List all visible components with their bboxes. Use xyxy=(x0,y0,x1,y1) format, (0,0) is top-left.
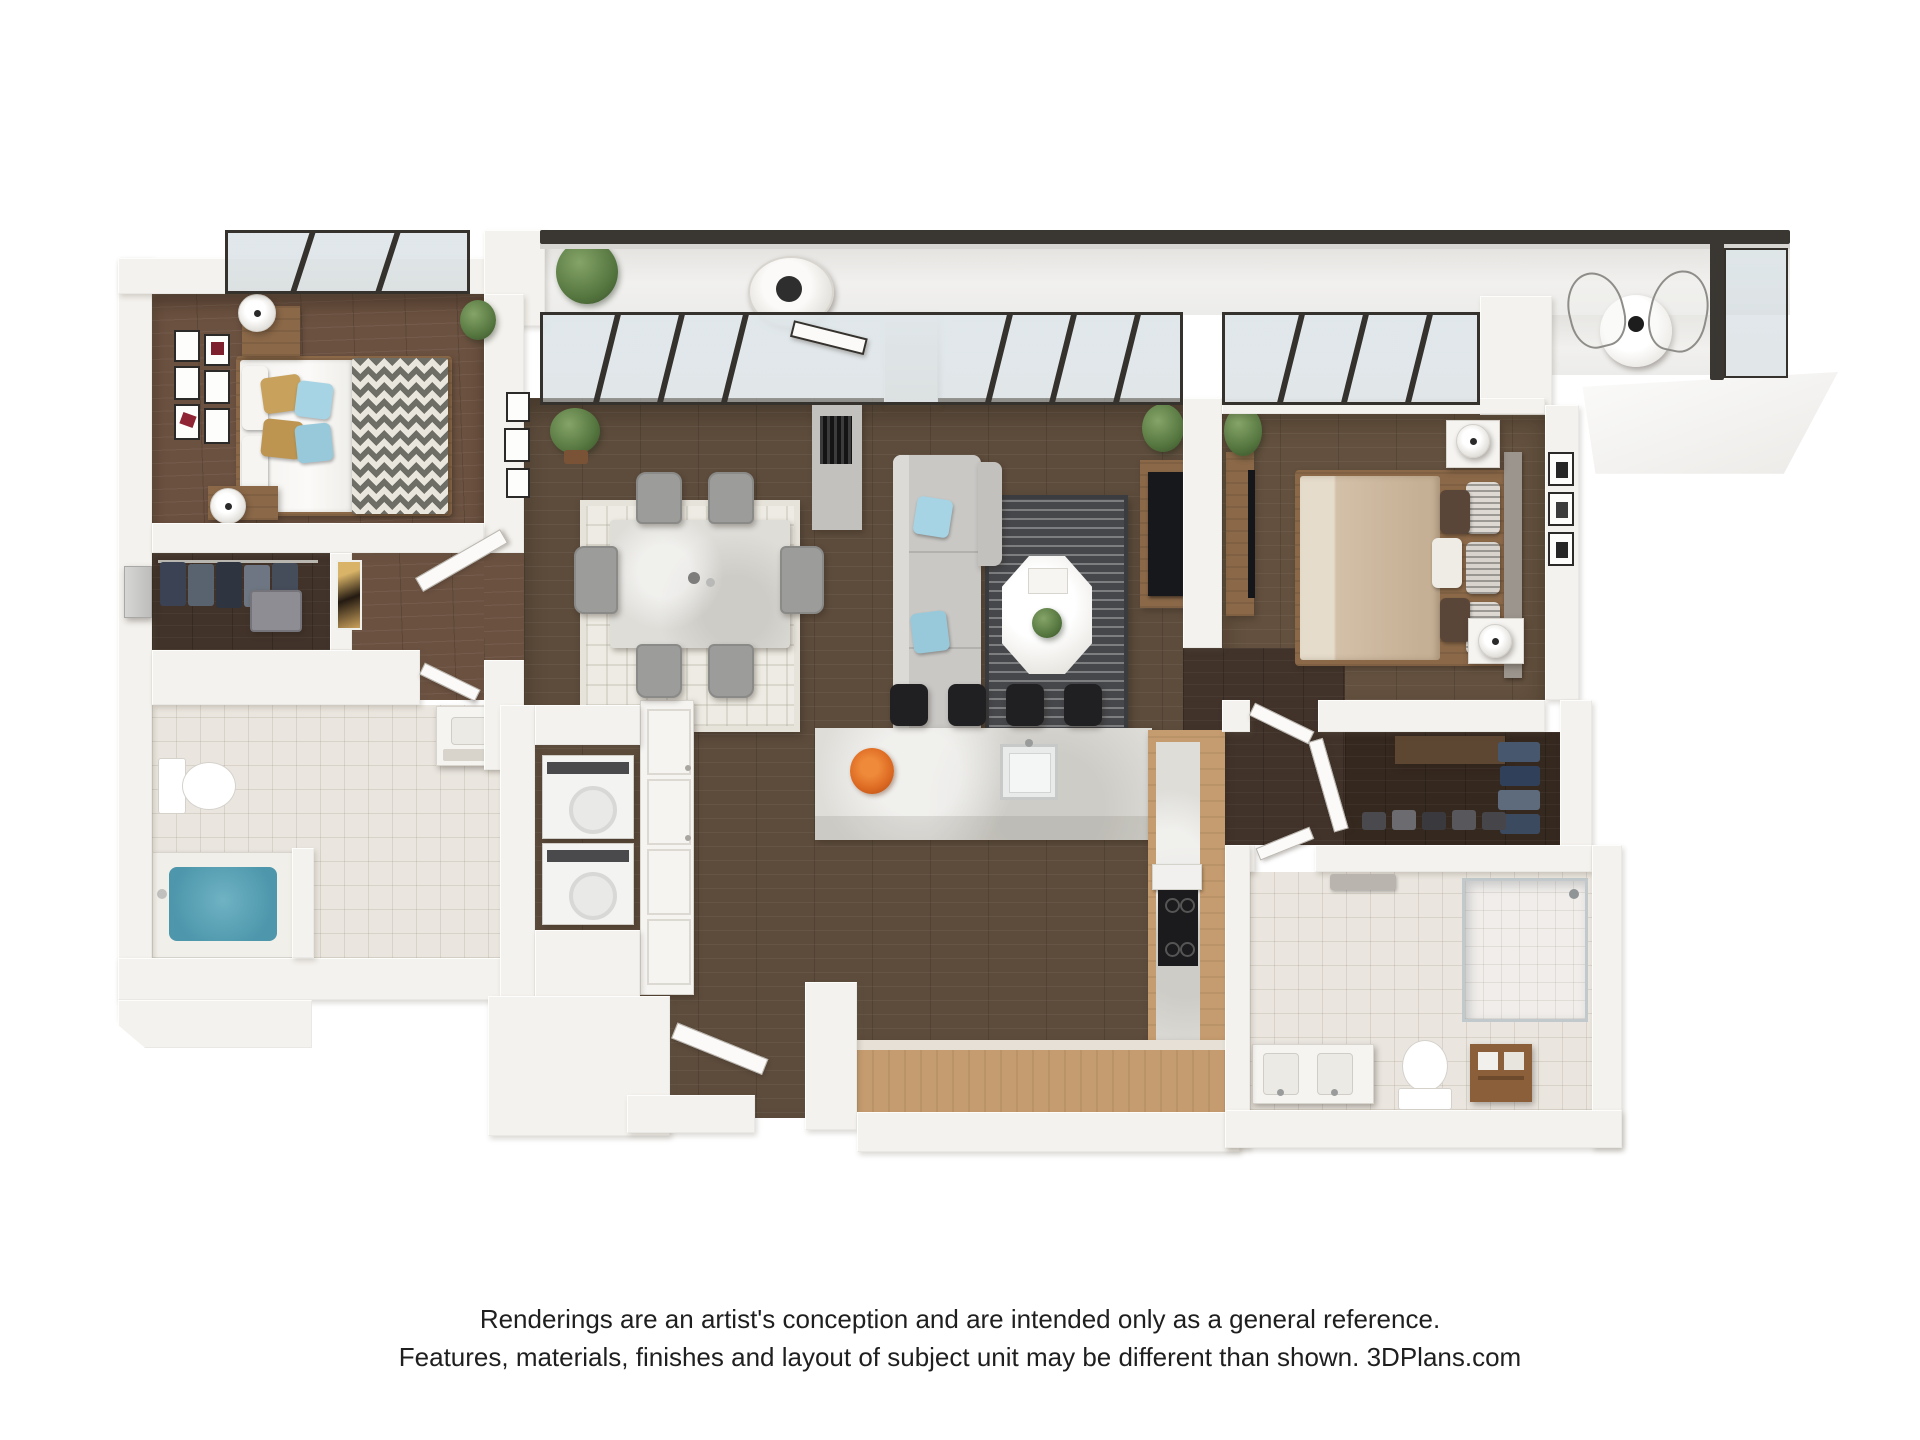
balcony-table-kettle xyxy=(1628,316,1644,332)
wall xyxy=(1592,845,1622,1148)
fireplace-column xyxy=(812,404,862,530)
sofa-pillow-blue xyxy=(910,610,951,654)
wall xyxy=(1560,700,1592,850)
coffee-table xyxy=(1002,556,1092,674)
tv-living xyxy=(1148,472,1184,596)
balcony-white-terrace-slab xyxy=(1580,372,1838,478)
art-frame xyxy=(204,334,230,366)
hall-artwork xyxy=(336,560,362,630)
bar-stool xyxy=(1006,684,1044,726)
master-duvet xyxy=(1300,476,1440,660)
living-plant xyxy=(1142,404,1184,452)
dining-chair xyxy=(708,472,754,524)
kitchen-sink xyxy=(1000,744,1058,800)
bar-stool xyxy=(1064,684,1102,726)
towel-bar xyxy=(1330,874,1396,890)
bath2-wood-shelf xyxy=(1470,1044,1532,1102)
plant-pot xyxy=(564,450,588,464)
gallery-wall xyxy=(174,330,234,454)
wall xyxy=(857,1112,1240,1152)
wall xyxy=(535,930,640,1000)
wall xyxy=(118,258,152,1018)
sofa-chaise xyxy=(978,462,1002,566)
range-hood xyxy=(1152,864,1202,890)
dining-chair xyxy=(636,644,682,698)
closet2-shoes xyxy=(1362,808,1527,838)
suitcase xyxy=(250,590,302,632)
wall xyxy=(118,1000,312,1048)
lamp xyxy=(1456,424,1490,458)
wall xyxy=(1315,845,1592,872)
balcony-fiddle-plant xyxy=(556,240,618,304)
art-frame xyxy=(174,330,200,362)
toilet-2 xyxy=(1398,1040,1450,1110)
lamp xyxy=(1478,624,1512,658)
wall xyxy=(1222,700,1250,732)
hall1-connector-floor xyxy=(484,553,524,660)
ledge-plant xyxy=(460,300,496,340)
wall xyxy=(152,650,420,705)
disclaimer-line-2: Features, materials, finishes and layout… xyxy=(160,1338,1760,1376)
toilet-1 xyxy=(158,756,238,814)
balcony-glass-panel xyxy=(1724,248,1788,378)
hanging-chair-cushion xyxy=(776,276,802,302)
wall xyxy=(118,958,524,1000)
art-frame xyxy=(204,408,230,444)
dining-chair xyxy=(574,546,618,614)
bed2-pillow-blue xyxy=(294,380,334,420)
bedroom2-windows xyxy=(225,230,470,294)
balcony-railing xyxy=(540,230,1790,244)
shower xyxy=(1462,878,1588,1022)
floorplan-render: Renderings are an artist's conception an… xyxy=(0,0,1920,1440)
bed2-chevron-throw xyxy=(352,358,448,514)
dining-chair xyxy=(708,644,754,698)
flower-vase xyxy=(850,748,894,794)
wall xyxy=(500,705,535,1000)
wall xyxy=(805,982,857,1130)
wall xyxy=(1183,398,1222,648)
wall xyxy=(292,848,314,958)
living-dining-window-wall xyxy=(540,312,1183,405)
master-art-frames xyxy=(1548,452,1576,572)
closet2-shelf xyxy=(1395,736,1505,764)
bar-stool xyxy=(890,684,928,726)
utility-panel xyxy=(124,566,152,618)
bathtub xyxy=(152,852,296,958)
dining-chair xyxy=(636,472,682,524)
bar-stool xyxy=(948,684,986,726)
art-frame xyxy=(204,370,230,404)
disclaimer-line-1: Renderings are an artist's conception an… xyxy=(160,1300,1760,1338)
kitchen-cabinet-run-bottom xyxy=(856,1040,1225,1120)
wall xyxy=(535,705,640,745)
art-frame xyxy=(174,366,200,400)
tv-master xyxy=(1248,470,1255,598)
pantry-cabinet xyxy=(640,700,694,995)
disclaimer-text: Renderings are an artist's conception an… xyxy=(160,1300,1760,1376)
wall xyxy=(152,523,484,553)
dining-wall-frames xyxy=(502,392,536,522)
wall xyxy=(1225,845,1250,1148)
wall xyxy=(1225,1110,1622,1148)
dryer xyxy=(542,843,634,925)
master-vanity xyxy=(1252,1044,1374,1104)
lamp xyxy=(210,488,246,524)
art-frame xyxy=(174,404,200,440)
dining-chair xyxy=(780,546,824,614)
balcony-railing-ledge xyxy=(540,244,1790,249)
dining-plant xyxy=(550,408,600,454)
wall xyxy=(627,1095,755,1133)
sofa-pillow-blue xyxy=(912,495,954,538)
balcony-railing-post xyxy=(1710,240,1724,380)
lamp xyxy=(238,294,276,332)
washer xyxy=(542,755,634,839)
cooktop xyxy=(1158,890,1198,966)
wall xyxy=(1318,700,1545,732)
bed2-pillow-blue xyxy=(294,422,334,464)
dining-table xyxy=(610,520,790,648)
